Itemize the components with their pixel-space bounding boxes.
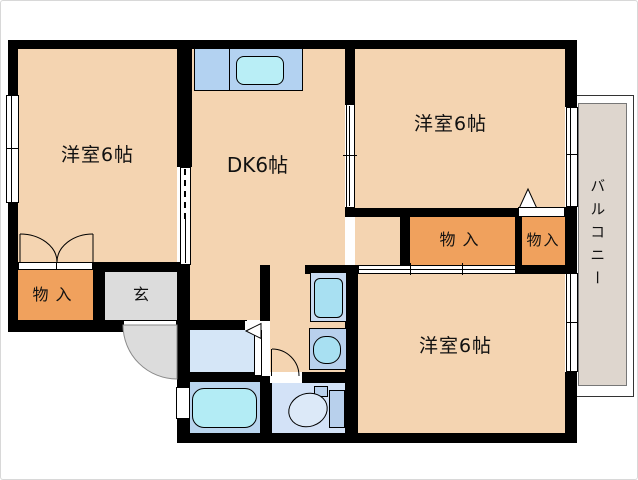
label-bedroom-top-left: 洋室6帖 <box>35 145 160 167</box>
floorplan-canvas: 洋室6帖 DK6帖 洋室6帖 洋室6帖 物入 物入 物入 玄 バルコニー <box>0 0 638 480</box>
label-dining-kitchen: DK6帖 <box>195 154 320 177</box>
entrance-door-swing <box>123 325 177 379</box>
closet-door-left-swing <box>20 234 57 262</box>
closet-door-right-swing <box>57 234 93 262</box>
door-marker-washroom <box>246 324 261 339</box>
door-marker-tr-room <box>520 189 537 208</box>
label-balcony: バルコニー <box>588 178 605 293</box>
toilet-door-swing <box>272 349 299 376</box>
label-closet-right: 物入 <box>522 232 565 249</box>
label-entrance: 玄 <box>105 286 177 304</box>
label-bedroom-top-right: 洋室6帖 <box>388 114 513 136</box>
label-bedroom-bottom-right: 洋室6帖 <box>393 336 518 358</box>
label-closet-bottom-left: 物入 <box>18 286 93 304</box>
label-closet-middle: 物入 <box>410 231 515 249</box>
